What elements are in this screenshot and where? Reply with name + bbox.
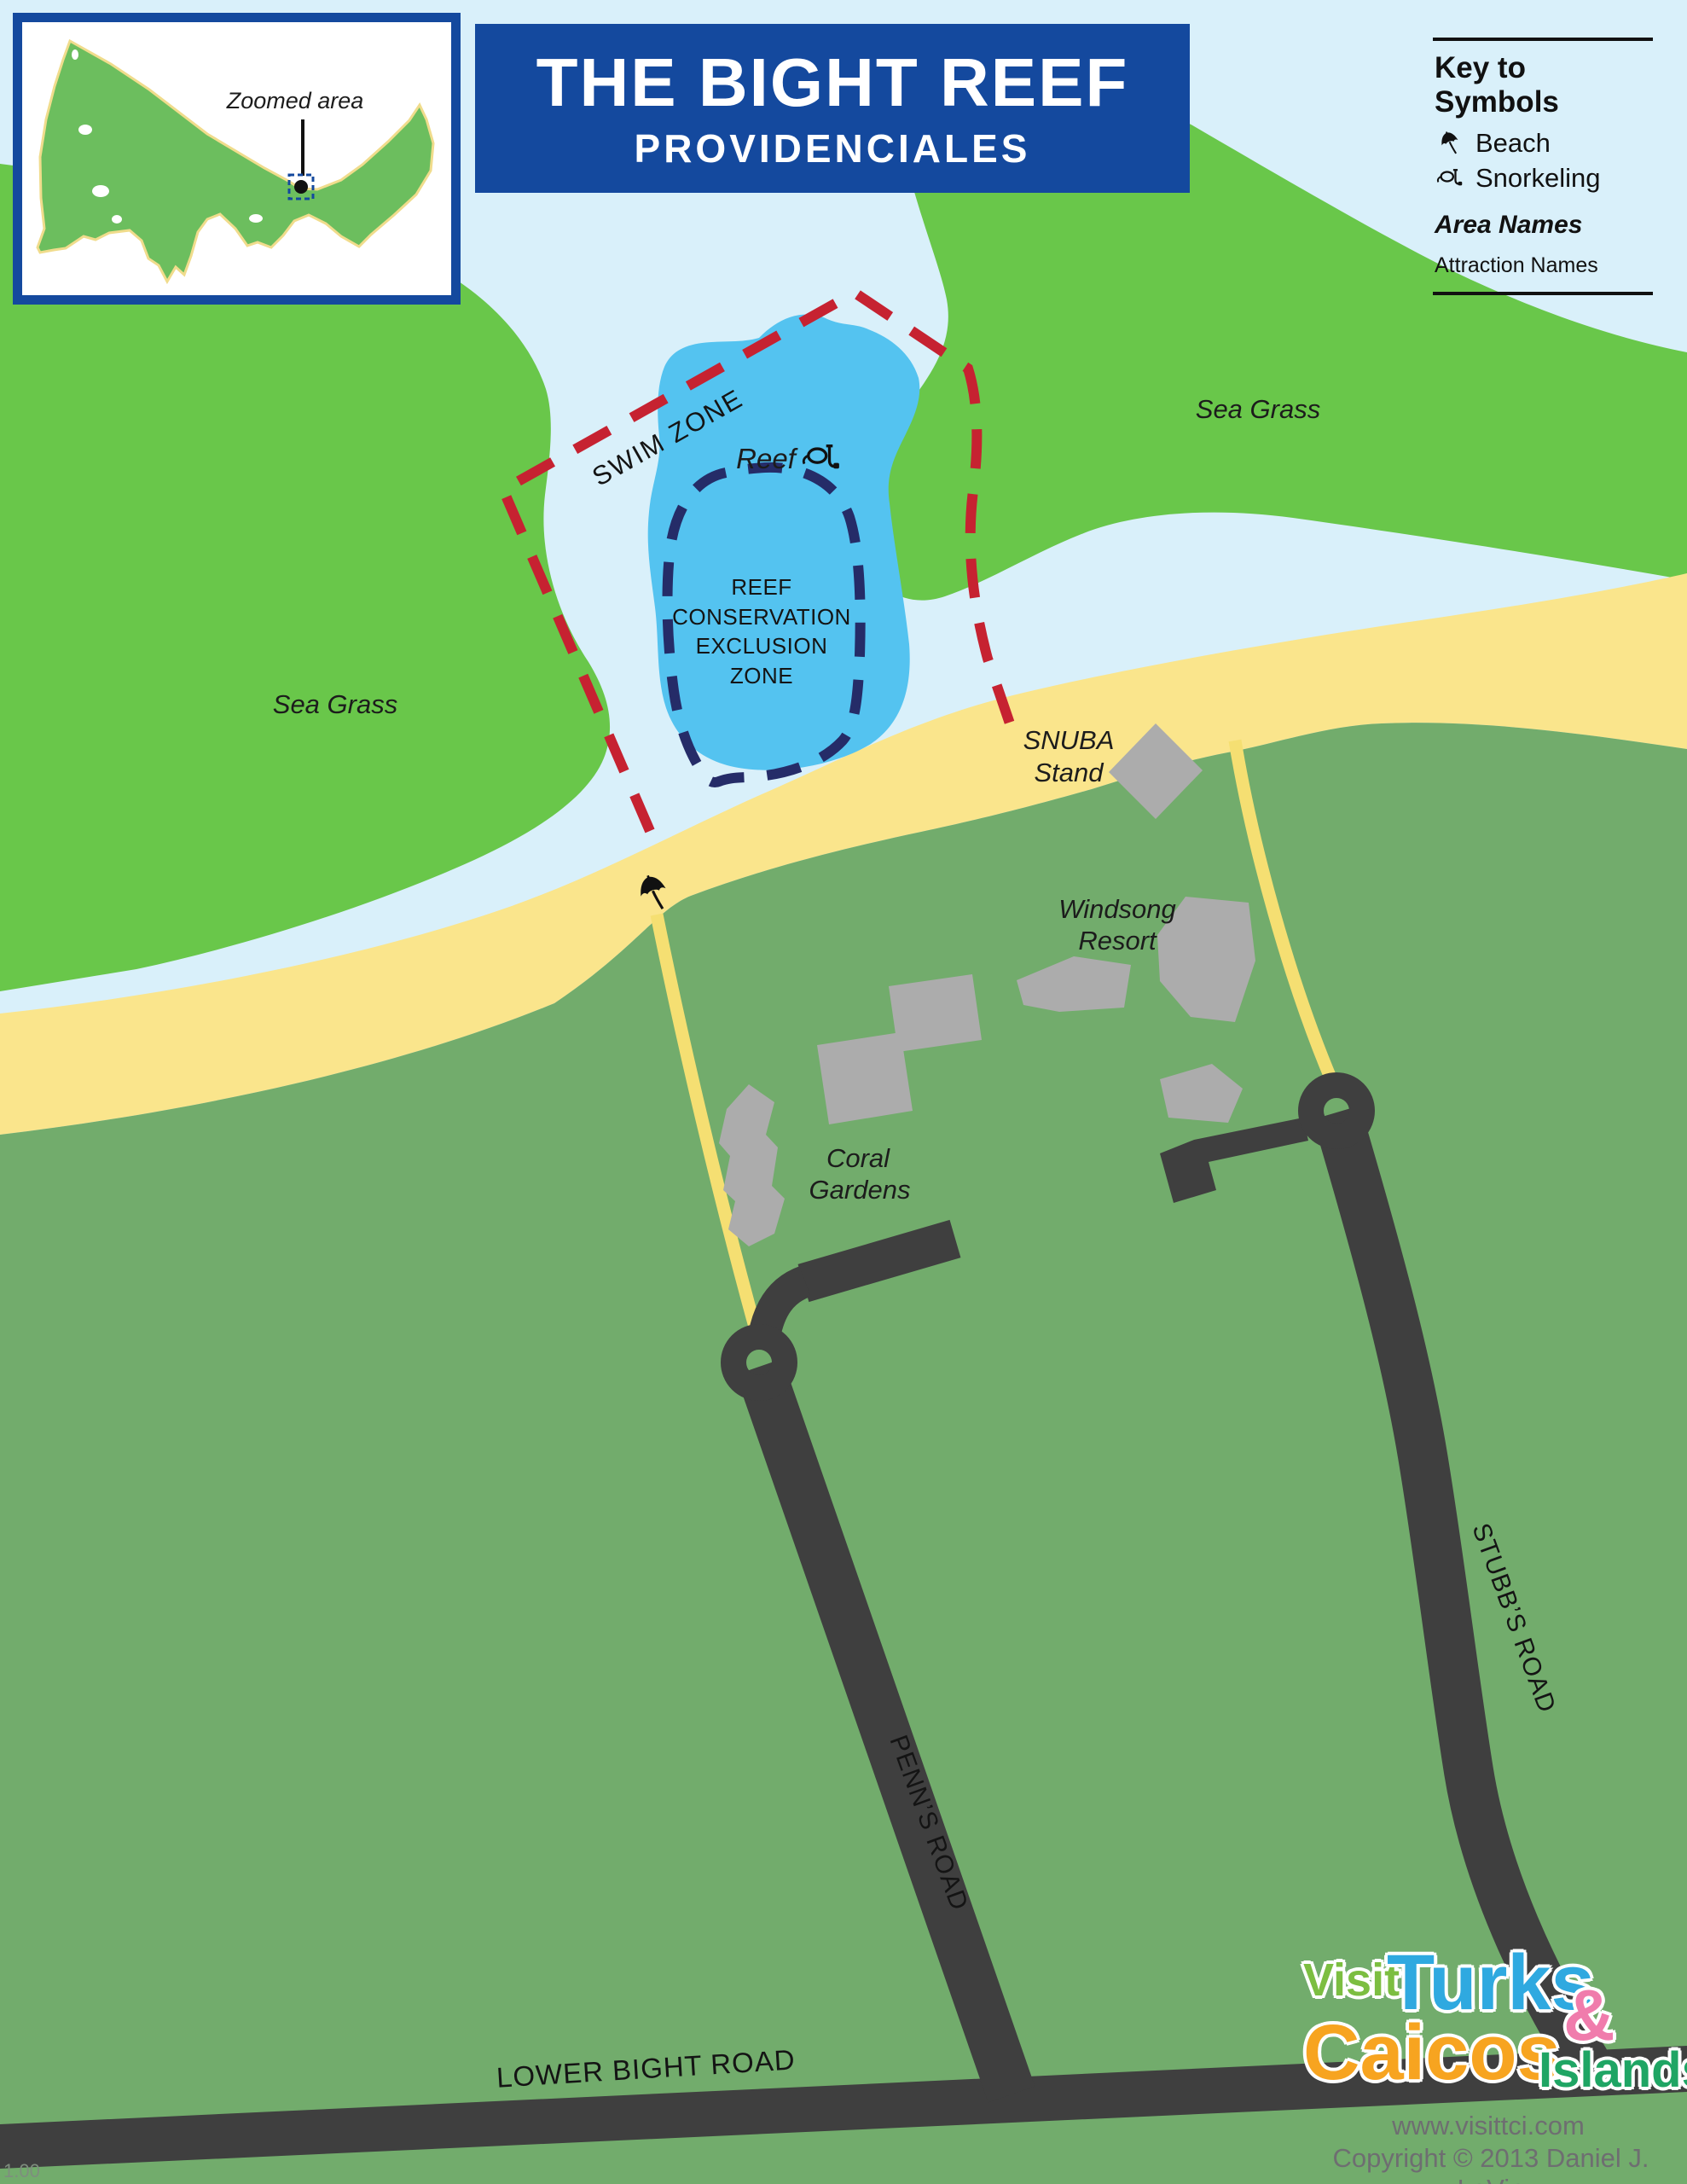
conservation-line-4: ZONE: [730, 663, 793, 688]
reef-label: Reef: [736, 443, 799, 474]
windsong-line-2: Resort: [1078, 926, 1157, 955]
version-number: 1.00: [3, 2160, 40, 2182]
map-canvas: Sea Grass Sea Grass SWIM ZONE Reef REEF …: [0, 0, 1687, 2184]
logo-word-ampersand: &: [1563, 1979, 1615, 2051]
zoomed-area-marker-dot: [294, 180, 308, 194]
legend-box: Key to Symbols Beach Snorkeling Area Nam…: [1433, 38, 1653, 295]
bight-reef-map-page: Sea Grass Sea Grass SWIM ZONE Reef REEF …: [0, 0, 1687, 2184]
windsong-line-1: Windsong: [1058, 894, 1176, 924]
legend-attraction-names-label: Attraction Names: [1435, 253, 1653, 278]
logo-word-caicos: Caicos: [1303, 2013, 1561, 2092]
logo-word-visit: Visit: [1303, 1957, 1400, 2003]
zoomed-area-label: Zoomed area: [226, 88, 364, 113]
legend-row-snorkeling: Snorkeling: [1435, 163, 1653, 194]
map-subtitle: PROVIDENCIALES: [635, 129, 1031, 168]
logo-word-islands: Islands®: [1539, 2046, 1687, 2095]
legend-title: Key to Symbols: [1435, 51, 1653, 119]
conservation-line-1: REEF: [731, 574, 791, 600]
copyright-notice: Copyright © 2013 Daniel J. LeVin: [1303, 2143, 1678, 2184]
sea-grass-label-east: Sea Grass: [1196, 394, 1320, 424]
legend-area-names-label: Area Names: [1435, 211, 1653, 240]
conservation-line-3: EXCLUSION: [696, 633, 828, 659]
beach-umbrella-icon: [1435, 129, 1465, 158]
conservation-line-2: CONSERVATION: [672, 604, 851, 630]
snuba-line-2: Stand: [1034, 758, 1104, 787]
logo-islands-text: Islands: [1539, 2042, 1687, 2098]
snuba-line-1: SNUBA: [1023, 725, 1115, 755]
legend-row-beach: Beach: [1435, 128, 1653, 159]
website-url: www.visittci.com: [1330, 2111, 1646, 2141]
snorkel-icon: [1435, 166, 1465, 191]
sea-grass-label-west: Sea Grass: [273, 689, 397, 719]
coral-line-1: Coral: [826, 1143, 890, 1173]
map-title-box: THE BIGHT REEF PROVIDENCIALES: [475, 24, 1190, 193]
legend-snorkeling-label: Snorkeling: [1475, 163, 1600, 194]
windsong-building-2: [889, 974, 982, 1052]
map-title: THE BIGHT REEF: [536, 49, 1129, 117]
providenciales-island-shape: [38, 41, 433, 282]
inset-canvas: Zoomed area: [22, 22, 451, 295]
island-inset-map: Zoomed area: [13, 13, 461, 305]
coral-line-2: Gardens: [809, 1175, 911, 1205]
legend-beach-label: Beach: [1475, 128, 1551, 159]
